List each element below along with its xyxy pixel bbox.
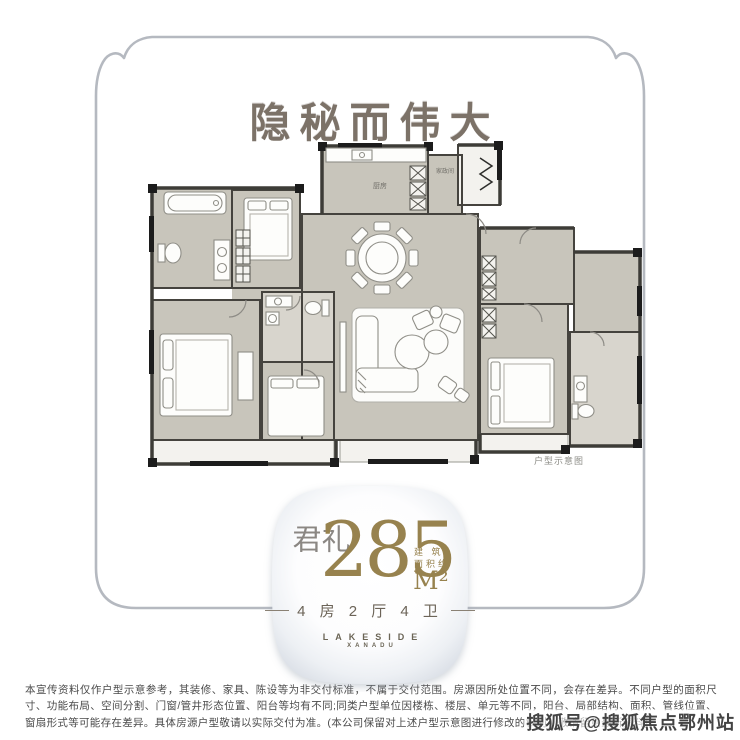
area-badge: 礼君 285 建 筑 面积约 M² 4 房 2 厅 4 卫 LAKESIDE X… [262, 478, 478, 692]
watermark: 搜狐号@搜狐焦点鄂州站 [524, 709, 737, 735]
poster-page: { "title": { "text": "隐秘而伟大" }, "floor_p… [0, 0, 740, 740]
brand-line1: LAKESIDE [262, 632, 478, 642]
floor-plan: 厨房 家政间 户型示意图 [145, 138, 645, 470]
layout-rule-right [451, 610, 475, 611]
utility-label: 家政间 [436, 167, 454, 175]
bedroom4-bed [488, 358, 554, 428]
brand-line2: XANADU [262, 643, 478, 649]
brand-wordmark: LAKESIDE XANADU [262, 632, 478, 649]
kitchen-label: 厨房 [373, 181, 387, 190]
bedroom2-bed [244, 198, 292, 260]
plan-caption: 户型示意图 [534, 455, 584, 466]
layout-summary: 4 房 2 厅 4 卫 [262, 600, 478, 621]
living-set [340, 306, 470, 404]
layout-text: 4 房 2 厅 4 卫 [297, 600, 443, 621]
layout-rule-left [265, 610, 289, 611]
bedroom3-bed [268, 376, 324, 436]
area-unit: M² [413, 568, 449, 593]
area-note-line1: 建 筑 [414, 546, 450, 558]
kitchen-counter [326, 148, 426, 162]
